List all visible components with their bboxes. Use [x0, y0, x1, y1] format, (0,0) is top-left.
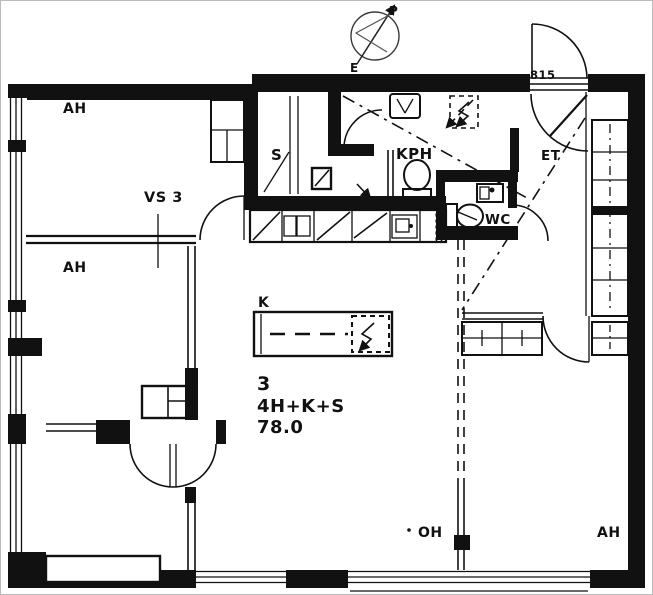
- floor-plan: P E AH AH AH OH S KPH WC ET K VS 3 815 3…: [0, 0, 653, 595]
- sink-icon: [477, 184, 503, 202]
- partition-marker-label: VS 3: [144, 190, 183, 206]
- sauna-door-arc: [344, 110, 382, 148]
- appliance-reservation: [450, 96, 478, 128]
- apartment-type: 4H+K+S: [257, 396, 345, 417]
- room-label-kitchen: K: [258, 295, 270, 311]
- room-label-bedroom-top-left: AH: [63, 101, 87, 117]
- toilet-icon: [446, 204, 483, 228]
- window: [7, 152, 27, 300]
- bedroom-door: [200, 196, 244, 240]
- double-door: [130, 444, 216, 487]
- apartment-area: 78.0: [257, 417, 303, 438]
- sauna-fixtures: [264, 96, 331, 194]
- toilet-icon: [403, 160, 431, 198]
- room-boundary-line: [454, 240, 470, 570]
- label-dot: [407, 528, 411, 532]
- kitchen-counter: [250, 210, 446, 242]
- room-label-entry-hall: ET: [541, 148, 561, 164]
- apartment-number: 3: [257, 373, 271, 395]
- window: [7, 444, 27, 552]
- kitchen-island: [254, 312, 392, 356]
- entry-door: [531, 24, 588, 151]
- room-label-toilet: WC: [485, 212, 511, 228]
- window: [348, 568, 590, 591]
- wardrobe-row: [462, 322, 542, 355]
- closet: [211, 100, 244, 162]
- room-label-bathroom: KPH: [396, 145, 433, 163]
- window: [7, 356, 27, 414]
- wardrobe-column: [592, 120, 628, 316]
- room-label-bedroom-mid-left: AH: [63, 260, 87, 276]
- labels: AH AH AH OH S KPH WC ET K VS 3 815 3 4H+…: [63, 68, 621, 541]
- compass-north-label: P: [389, 4, 398, 18]
- compass-icon: P E: [350, 4, 399, 75]
- room-label-sauna: S: [271, 146, 282, 164]
- wardrobe: [592, 322, 628, 355]
- sauna-stove-icon: [312, 168, 331, 189]
- window: [46, 556, 160, 582]
- appliance-icon: [392, 215, 417, 238]
- window: [7, 312, 27, 338]
- window: [196, 568, 286, 588]
- compass-south-label: E: [350, 61, 359, 75]
- bedroom-door: [543, 316, 589, 362]
- stove-icon: [352, 316, 389, 352]
- room-label-bedroom-bottom-right: AH: [597, 525, 621, 541]
- sink-icon: [284, 216, 310, 236]
- window: [7, 98, 27, 140]
- room-label-living-room: OH: [418, 525, 443, 541]
- washbasin-icon: [390, 94, 420, 118]
- wall-pier: [8, 552, 46, 588]
- floor-slope-arrow: [357, 184, 370, 198]
- wall-pier: [8, 338, 42, 356]
- entry-door-code: 815: [530, 68, 556, 82]
